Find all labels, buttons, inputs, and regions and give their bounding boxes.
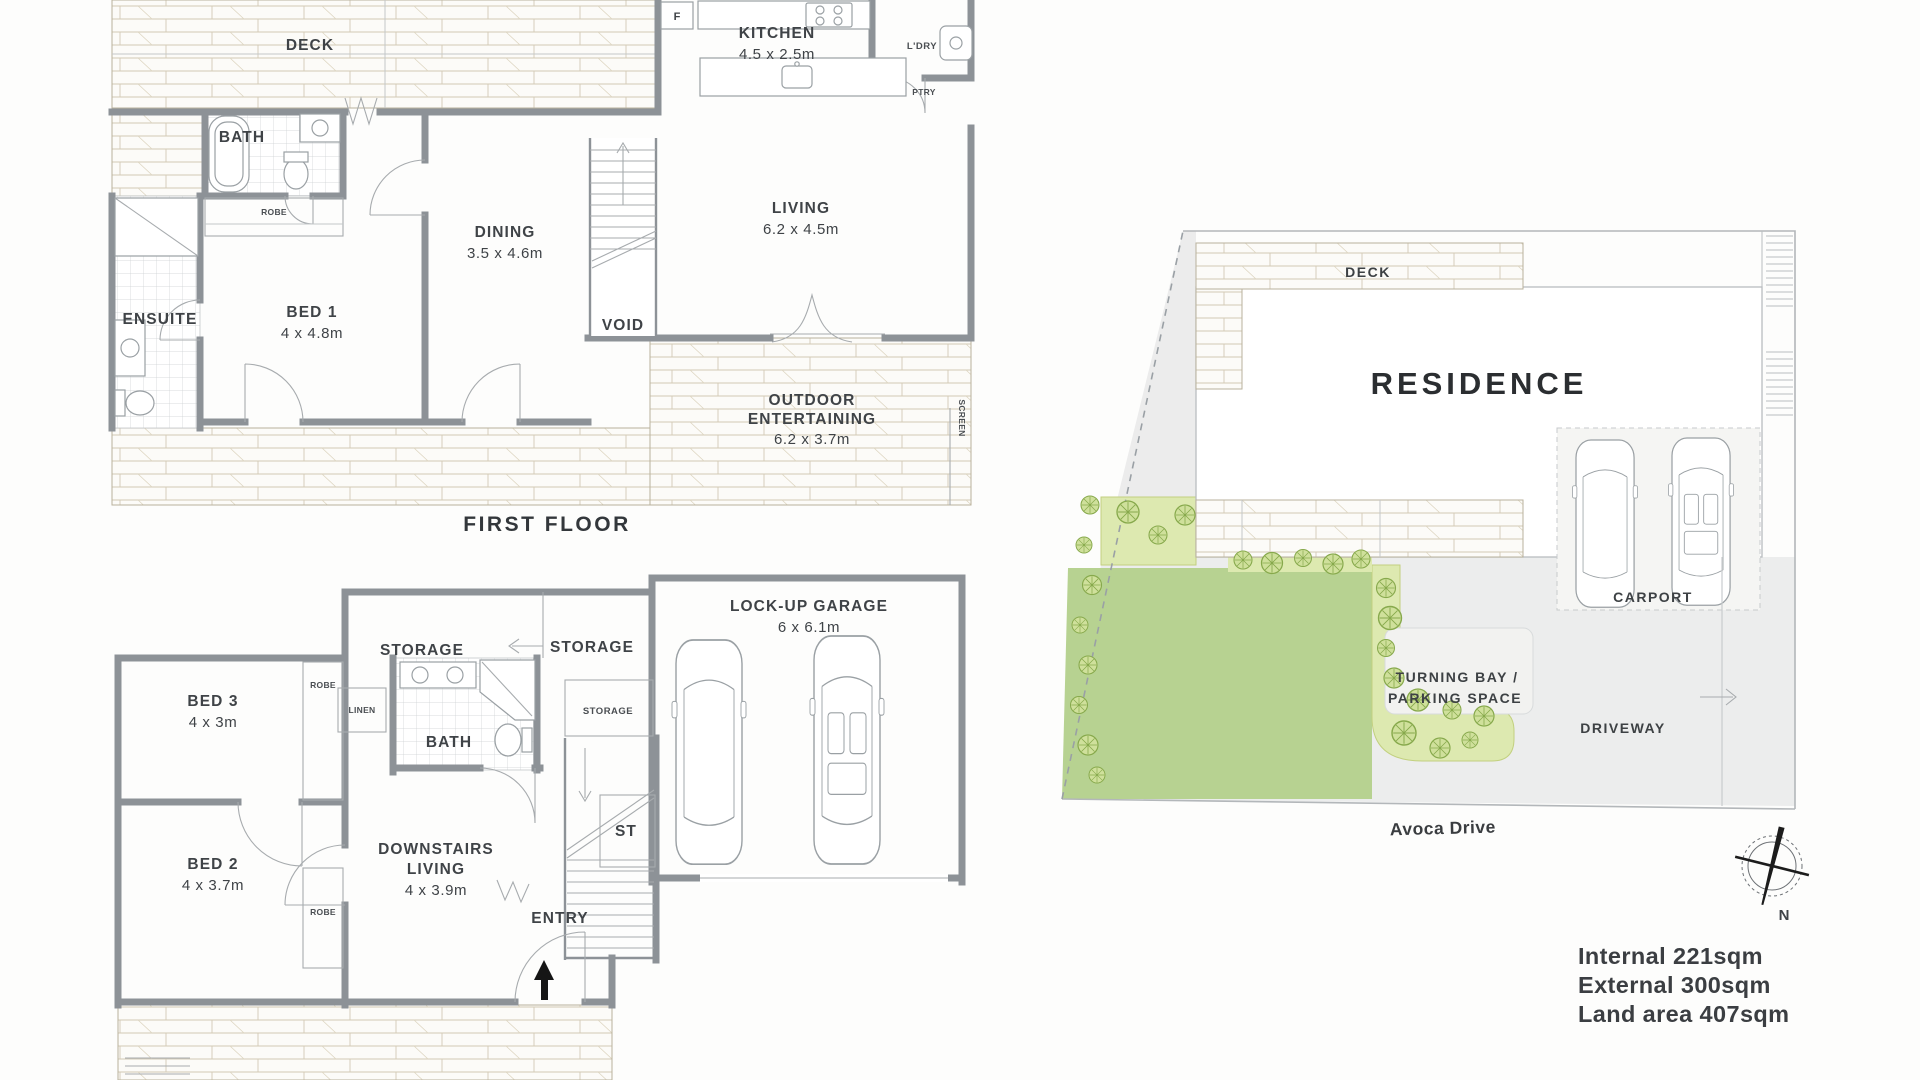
entry-arrow (534, 960, 554, 1000)
label-bed2: BED 2 (187, 856, 238, 873)
label-bed3: BED 3 (187, 693, 238, 710)
label-linen: LINEN (349, 705, 376, 715)
label-st: ST (615, 823, 637, 840)
label-turning-bay-1: TURNING BAY / (1396, 669, 1519, 685)
label-ptry: PTRY (912, 87, 936, 97)
compass: N (1725, 818, 1818, 924)
area-summary: Internal 221sqm External 300sqm Land are… (1578, 943, 1789, 1027)
garage-car-right (810, 636, 884, 864)
label-first-floor: FIRST FLOOR (463, 513, 631, 536)
label-screen: SCREEN (957, 399, 967, 436)
label-living-dims: 6.2 x 4.5m (763, 221, 839, 238)
label-dining-dims: 3.5 x 4.6m (467, 245, 543, 262)
label-residence: RESIDENCE (1371, 366, 1588, 401)
label-entry: ENTRY (531, 910, 588, 927)
label-bed1-dims: 4 x 4.8m (281, 325, 343, 342)
label-fridge: F (674, 11, 681, 23)
label-bed1: BED 1 (286, 304, 337, 321)
label-area-internal: Internal 221sqm (1578, 943, 1763, 969)
label-robe-ff: ROBE (261, 207, 287, 217)
label-bed3-dims: 4 x 3m (189, 714, 238, 731)
ground-porch (118, 1005, 612, 1080)
first-floor-stairs (590, 138, 656, 336)
lawn (1062, 568, 1372, 799)
label-robe-bed2: ROBE (310, 907, 336, 917)
label-ldry: L'DRY (907, 41, 937, 52)
label-kitchen: KITCHEN (739, 25, 816, 42)
label-bath-ff: BATH (219, 129, 265, 146)
label-deck-site: DECK (1345, 264, 1391, 280)
garage-car-left (672, 640, 746, 864)
label-carport: CARPORT (1613, 589, 1693, 605)
label-garage: LOCK-UP GARAGE (730, 598, 888, 615)
label-bed2-dims: 4 x 3.7m (182, 877, 244, 894)
site-deck-rear (1196, 500, 1523, 557)
label-outdoor1: OUTDOOR (769, 392, 856, 409)
storage-arrow (509, 639, 543, 653)
site-plan: N DECK RESIDENCE CARPORT TURNING BAY / P… (1062, 231, 1819, 924)
label-turning-bay-2: PARKING SPACE (1388, 690, 1522, 706)
label-deck-ff: DECK (286, 37, 334, 54)
label-street: Avoca Drive (1390, 817, 1497, 840)
floor-plan-drawing: DECK F KITCHEN 4.5 x 2.5m L'DRY PTRY BAT… (0, 0, 1920, 1080)
label-living: LIVING (772, 200, 830, 217)
label-area-external: External 300sqm (1578, 972, 1771, 998)
label-garage-dims: 6 x 6.1m (778, 619, 840, 636)
label-driveway: DRIVEWAY (1580, 720, 1665, 736)
label-storage-mid: STORAGE (550, 639, 634, 656)
carport-car-left (1572, 440, 1637, 607)
first-floor-plan: DECK F KITCHEN 4.5 x 2.5m L'DRY PTRY BAT… (112, 0, 972, 536)
label-dining: DINING (475, 224, 536, 241)
site-deck-return (1196, 289, 1242, 389)
label-downstairs2: LIVING (407, 861, 465, 878)
first-floor-robe (205, 198, 343, 236)
side-stairs (1762, 231, 1793, 557)
label-kitchen-dims: 4.5 x 2.5m (739, 46, 815, 63)
ground-floor-plan: STORAGE STORAGE LOCK-UP GARAGE 6 x 6.1m … (118, 578, 962, 1080)
label-downstairs-dims: 4 x 3.9m (405, 882, 467, 899)
label-outdoor-dims: 6.2 x 3.7m (774, 431, 850, 448)
label-bath-gf: BATH (426, 734, 472, 751)
label-outdoor2: ENTERTAINING (748, 411, 876, 428)
label-downstairs1: DOWNSTAIRS (378, 841, 494, 858)
label-compass-n: N (1779, 907, 1790, 924)
label-storage-left: STORAGE (380, 642, 464, 659)
floor-plan-page: DECK F KITCHEN 4.5 x 2.5m L'DRY PTRY BAT… (0, 0, 1920, 1080)
label-void: VOID (602, 317, 644, 334)
label-ensuite: ENSUITE (123, 311, 198, 328)
label-area-land: Land area 407sqm (1578, 1001, 1789, 1027)
carport-car-right (1668, 438, 1733, 605)
label-storage-stairs: STORAGE (583, 706, 633, 717)
label-robe-bed3: ROBE (310, 680, 336, 690)
